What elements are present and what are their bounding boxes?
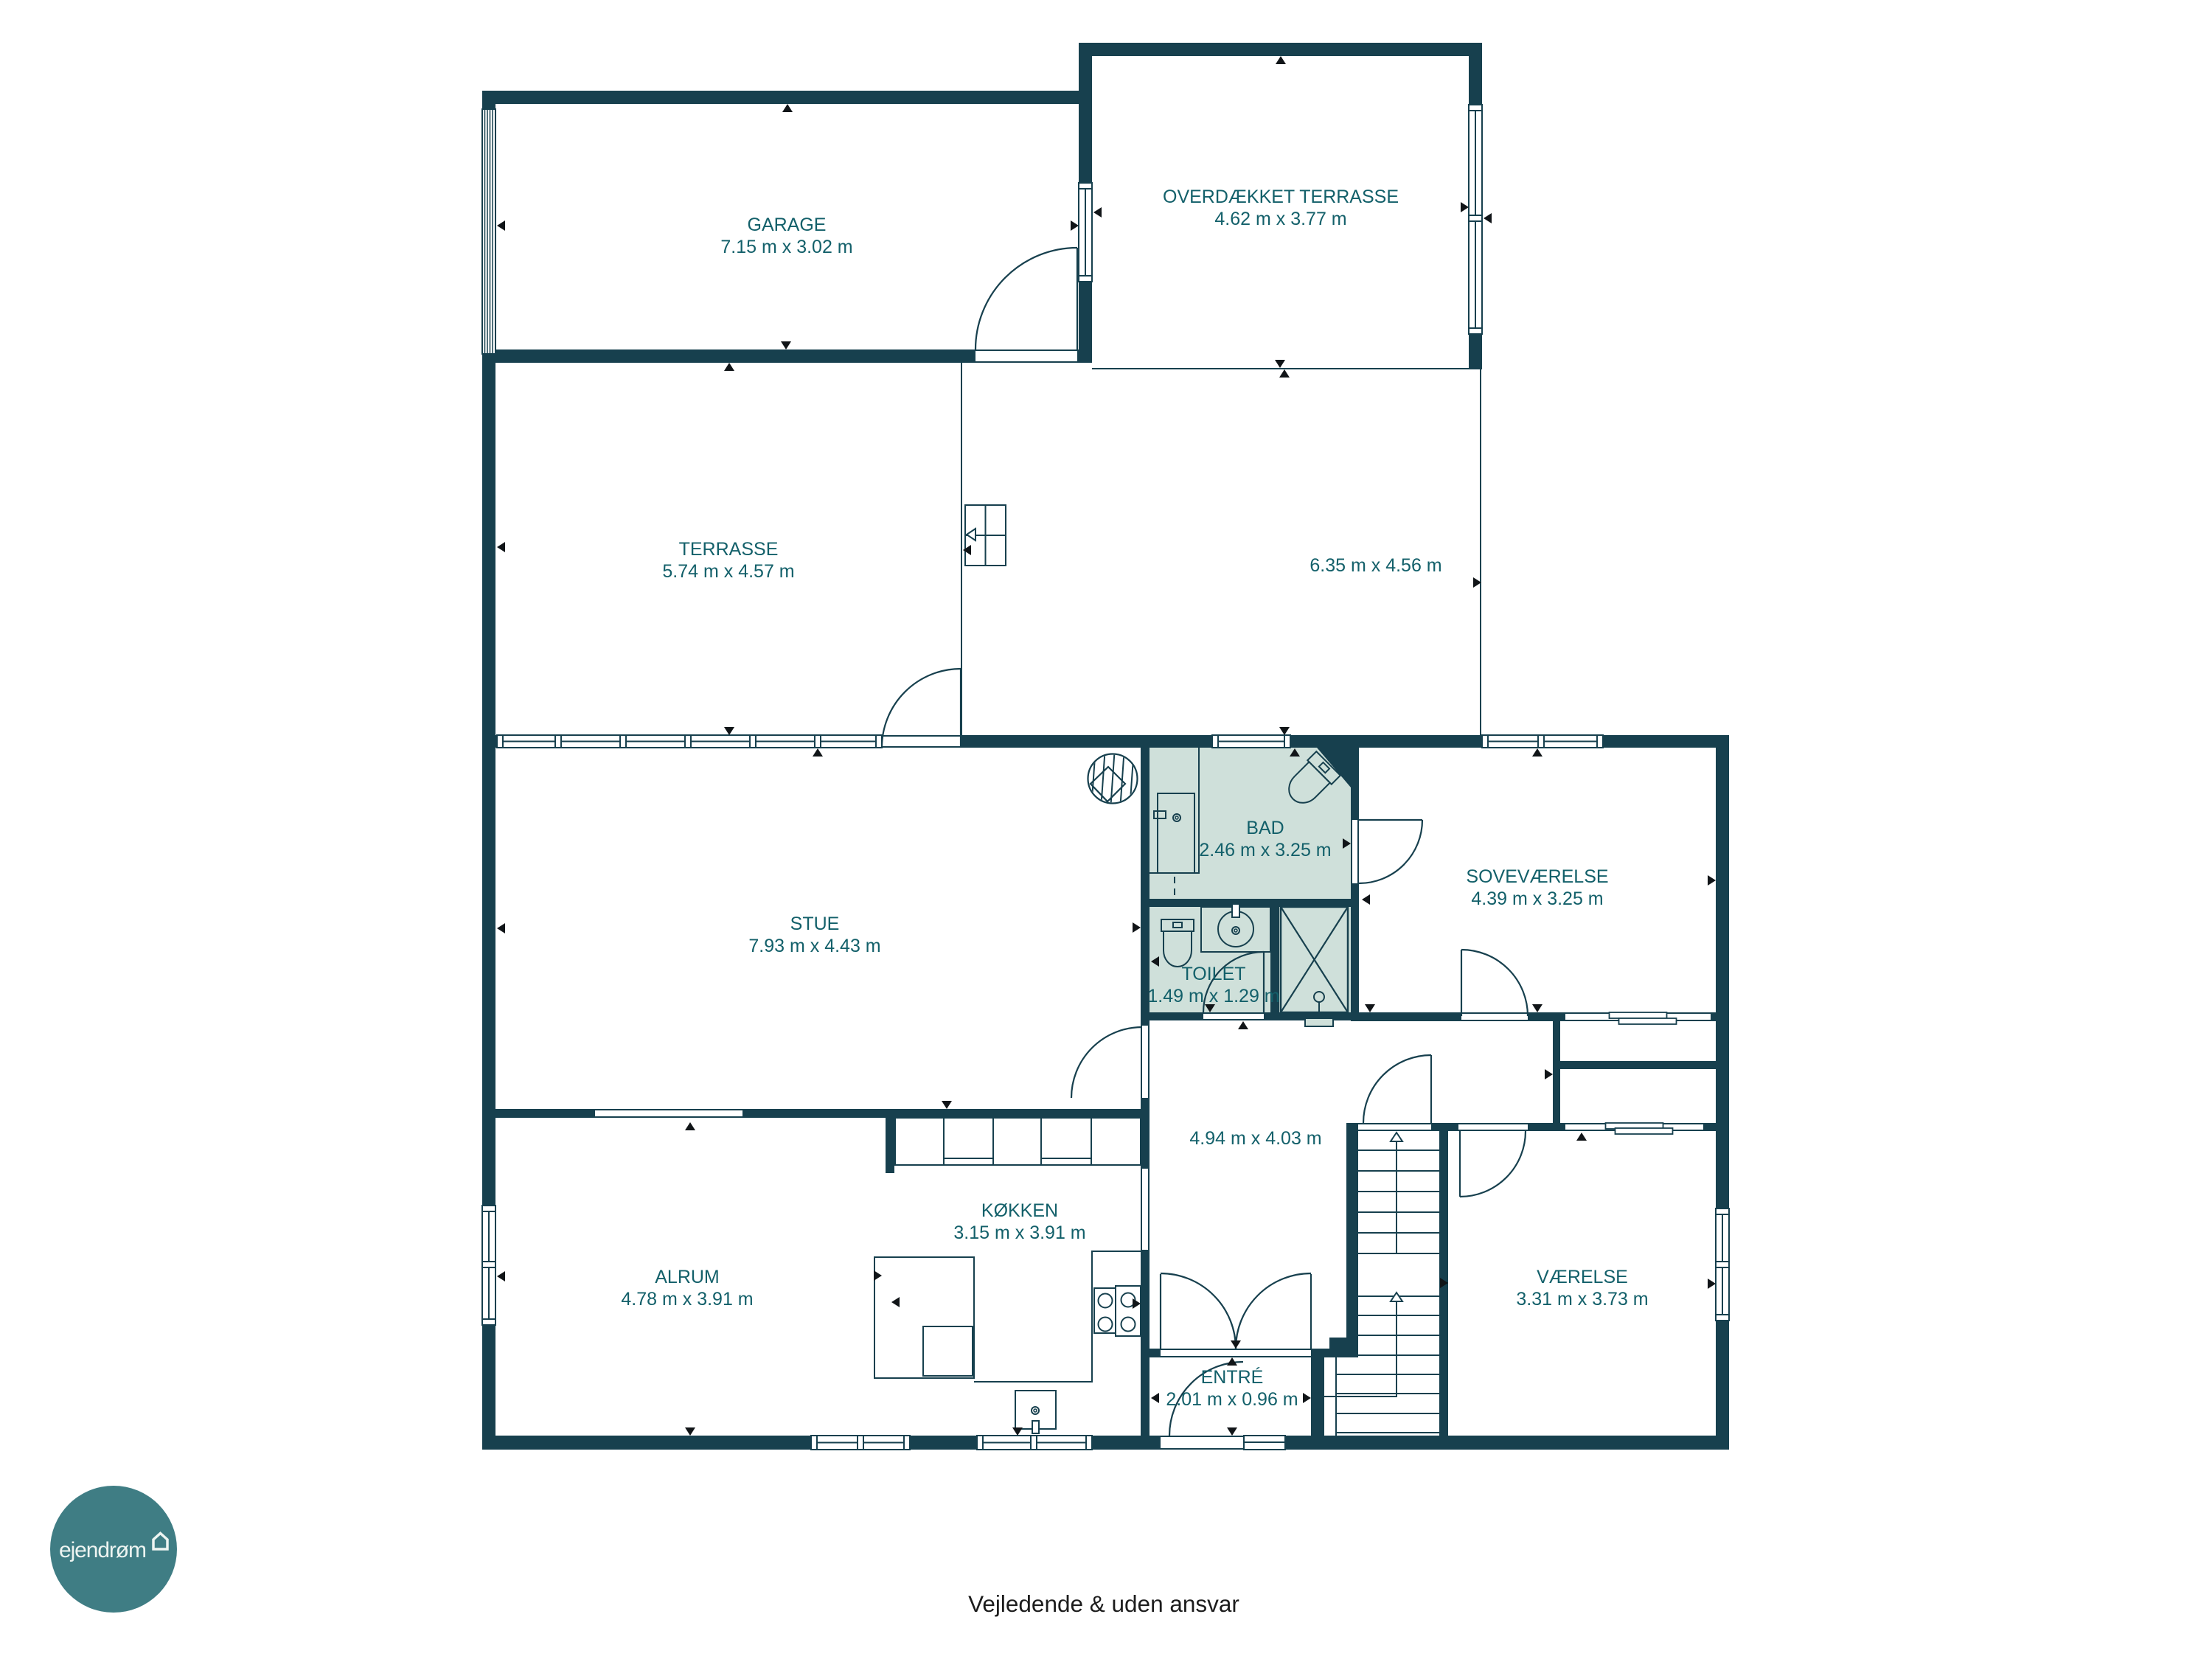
svg-text:5.74 m x 4.57 m: 5.74 m x 4.57 m xyxy=(662,561,794,582)
svg-text:KØKKEN: KØKKEN xyxy=(981,1200,1058,1221)
svg-text:BAD: BAD xyxy=(1246,818,1284,838)
svg-text:7.93 m x 4.43 m: 7.93 m x 4.43 m xyxy=(748,936,880,956)
svg-text:7.15 m x 3.02 m: 7.15 m x 3.02 m xyxy=(720,237,852,257)
svg-text:4.39 m x 3.25 m: 4.39 m x 3.25 m xyxy=(1471,888,1603,909)
svg-text:2.01 m x 0.96 m: 2.01 m x 0.96 m xyxy=(1166,1389,1298,1410)
svg-text:2.46 m x 3.25 m: 2.46 m x 3.25 m xyxy=(1199,840,1331,860)
svg-text:4.78 m x 3.91 m: 4.78 m x 3.91 m xyxy=(621,1289,753,1310)
svg-text:1.49 m x 1.29 m: 1.49 m x 1.29 m xyxy=(1147,986,1279,1006)
svg-text:4.62 m x 3.77 m: 4.62 m x 3.77 m xyxy=(1214,209,1346,229)
svg-text:3.31 m x 3.73 m: 3.31 m x 3.73 m xyxy=(1516,1289,1648,1310)
svg-text:TOILET: TOILET xyxy=(1181,964,1245,984)
svg-text:4.94 m x 4.03 m: 4.94 m x 4.03 m xyxy=(1189,1128,1321,1149)
svg-text:ejendrøm: ejendrøm xyxy=(59,1538,146,1562)
svg-text:3.15 m x 3.91 m: 3.15 m x 3.91 m xyxy=(953,1222,1085,1243)
svg-text:6.35 m x 4.56 m: 6.35 m x 4.56 m xyxy=(1310,555,1441,576)
svg-text:GARAGE: GARAGE xyxy=(748,215,827,235)
svg-text:STUE: STUE xyxy=(790,914,840,934)
svg-text:Vejledende & uden ansvar: Vejledende & uden ansvar xyxy=(968,1590,1239,1617)
svg-text:SOVEVÆRELSE: SOVEVÆRELSE xyxy=(1466,866,1608,887)
svg-text:TERRASSE: TERRASSE xyxy=(679,539,779,560)
svg-text:ALRUM: ALRUM xyxy=(655,1267,720,1287)
svg-text:ENTRÉ: ENTRÉ xyxy=(1201,1366,1264,1388)
svg-text:OVERDÆKKET TERRASSE: OVERDÆKKET TERRASSE xyxy=(1163,187,1399,207)
svg-text:VÆRELSE: VÆRELSE xyxy=(1537,1267,1628,1287)
